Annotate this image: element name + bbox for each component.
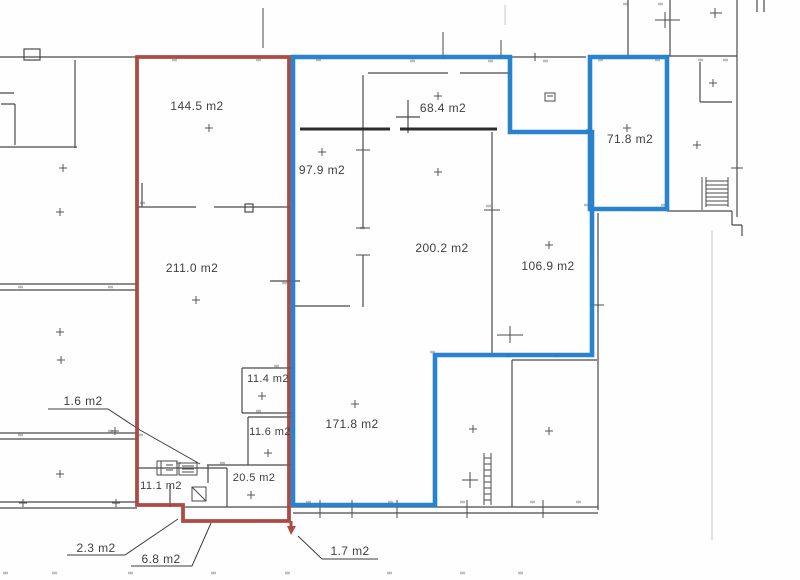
ladder-icon	[484, 453, 491, 505]
wall-dimension-ticks	[263, 8, 743, 518]
callout-label-2-3: 2.3 m2	[76, 541, 115, 555]
scan-smudge-marks	[3, 4, 728, 573]
callout-label-1-6: 1.6 m2	[63, 394, 102, 408]
area-label-144-5: 144.5 m2	[170, 99, 223, 113]
walls-layer	[0, 0, 764, 518]
walls-red-area-interior	[137, 183, 293, 507]
area-label-11-4: 11.4 m2	[247, 373, 289, 385]
area-label-106-9: 106.9 m2	[521, 259, 574, 273]
area-label-20-5: 20.5 m2	[233, 472, 276, 484]
area-label-11-6: 11.6 m2	[249, 426, 291, 438]
blue-outline	[293, 57, 667, 505]
red-arrow-head	[287, 526, 296, 535]
area-label-11-1: 11.1 m2	[140, 480, 182, 492]
door-detail-box	[245, 204, 253, 212]
room-fixture-icon	[545, 93, 555, 101]
area-label-171-8: 171.8 m2	[325, 417, 378, 431]
floorplan-drawing	[0, 0, 800, 580]
blue-boundary-main-polygon	[293, 57, 592, 505]
walls-left-section	[0, 57, 137, 508]
callout-label-6-8: 6.8 m2	[141, 552, 180, 566]
area-label-200-2: 200.2 m2	[415, 241, 468, 255]
area-label-211-0: 211.0 m2	[166, 261, 218, 275]
top-wall-box	[24, 49, 40, 60]
stairs-icon	[702, 177, 728, 210]
area-label-97-9: 97.9 m2	[299, 163, 345, 177]
area-label-71-8: 71.8 m2	[607, 132, 653, 146]
red-boundary-polygon	[137, 57, 289, 521]
callout-label-1-7: 1.7 m2	[330, 544, 369, 558]
area-label-68-4: 68.4 m2	[420, 101, 466, 115]
floor-plan-canvas: 144.5 m2 97.9 m2 68.4 m2 200.2 m2 106.9 …	[0, 0, 800, 580]
